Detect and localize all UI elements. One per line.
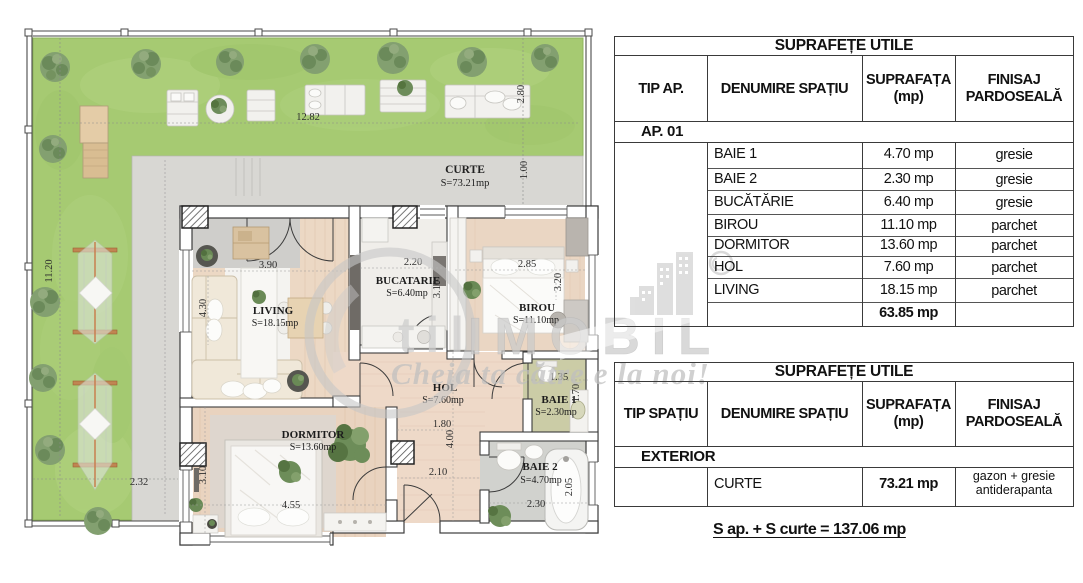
svg-text:S=2.30mp: S=2.30mp (535, 407, 576, 418)
svg-text:DORMITOR: DORMITOR (282, 429, 346, 441)
svg-text:S=13.60mp: S=13.60mp (290, 442, 336, 453)
svg-text:CURTE: CURTE (445, 164, 485, 176)
svg-text:12.82: 12.82 (296, 112, 320, 123)
svg-text:11.20: 11.20 (44, 259, 55, 282)
svg-text:2.32: 2.32 (130, 477, 148, 488)
svg-text:2.05: 2.05 (564, 478, 575, 496)
svg-text:1.00: 1.00 (519, 161, 530, 179)
svg-text:3.90: 3.90 (259, 260, 277, 271)
svg-text:BUCATARIE: BUCATARIE (376, 275, 440, 287)
svg-text:2.80: 2.80 (516, 85, 527, 103)
svg-text:S=6.40mp: S=6.40mp (386, 288, 427, 299)
svg-text:4.00: 4.00 (445, 430, 456, 448)
svg-text:til: til (398, 307, 464, 363)
svg-text:4.55: 4.55 (282, 500, 300, 511)
svg-text:4.30: 4.30 (198, 299, 209, 317)
svg-text:3.10: 3.10 (198, 466, 209, 484)
svg-text:BAIE 2: BAIE 2 (522, 461, 558, 473)
svg-text:1.80: 1.80 (433, 419, 451, 430)
svg-text:3.20: 3.20 (553, 273, 564, 291)
svg-text:S=73.21mp: S=73.21mp (441, 178, 490, 189)
svg-text:2.30: 2.30 (527, 499, 545, 510)
svg-text:3.10: 3.10 (432, 280, 443, 298)
svg-text:S=4.70mp: S=4.70mp (520, 475, 561, 486)
svg-text:S=18.15mp: S=18.15mp (252, 318, 298, 329)
svg-text:2.85: 2.85 (518, 259, 536, 270)
svg-text:LIVING: LIVING (253, 305, 294, 317)
svg-text:2.10: 2.10 (429, 467, 447, 478)
